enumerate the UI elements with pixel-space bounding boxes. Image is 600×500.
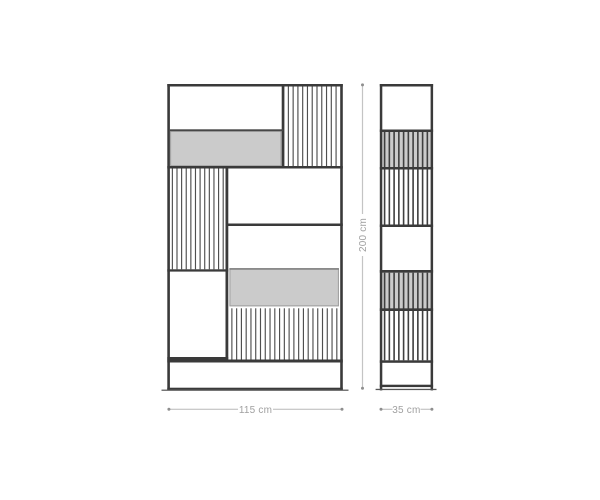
svg-text:200 cm: 200 cm [358, 218, 369, 252]
svg-text:35 cm: 35 cm [392, 405, 420, 416]
svg-text:115 cm: 115 cm [239, 405, 272, 416]
